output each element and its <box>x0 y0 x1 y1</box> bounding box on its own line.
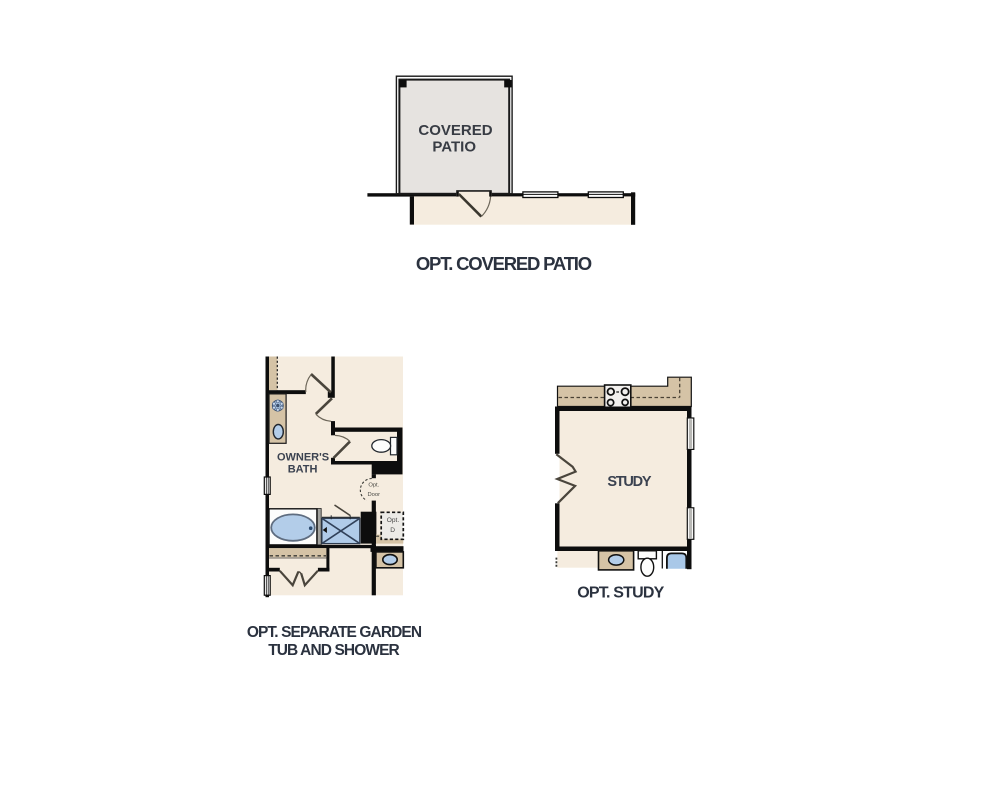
svg-text:TUB AND SHOWER: TUB AND SHOWER <box>268 642 399 659</box>
svg-text:COVERED: COVERED <box>418 122 492 139</box>
svg-text:OPT. STUDY: OPT. STUDY <box>577 584 664 601</box>
svg-text:Opt.: Opt. <box>368 483 379 489</box>
svg-text:Opt.: Opt. <box>387 517 400 524</box>
svg-text:OWNER'S: OWNER'S <box>277 452 329 464</box>
svg-text:BATH: BATH <box>288 463 318 475</box>
svg-text:D: D <box>390 527 395 534</box>
svg-text:STUDY: STUDY <box>607 474 651 490</box>
svg-text:PATIO: PATIO <box>432 139 476 156</box>
svg-text:OPT. SEPARATE GARDEN: OPT. SEPARATE GARDEN <box>247 624 422 641</box>
svg-text:Door: Door <box>368 492 381 498</box>
svg-text:OPT. COVERED PATIO: OPT. COVERED PATIO <box>416 253 592 274</box>
